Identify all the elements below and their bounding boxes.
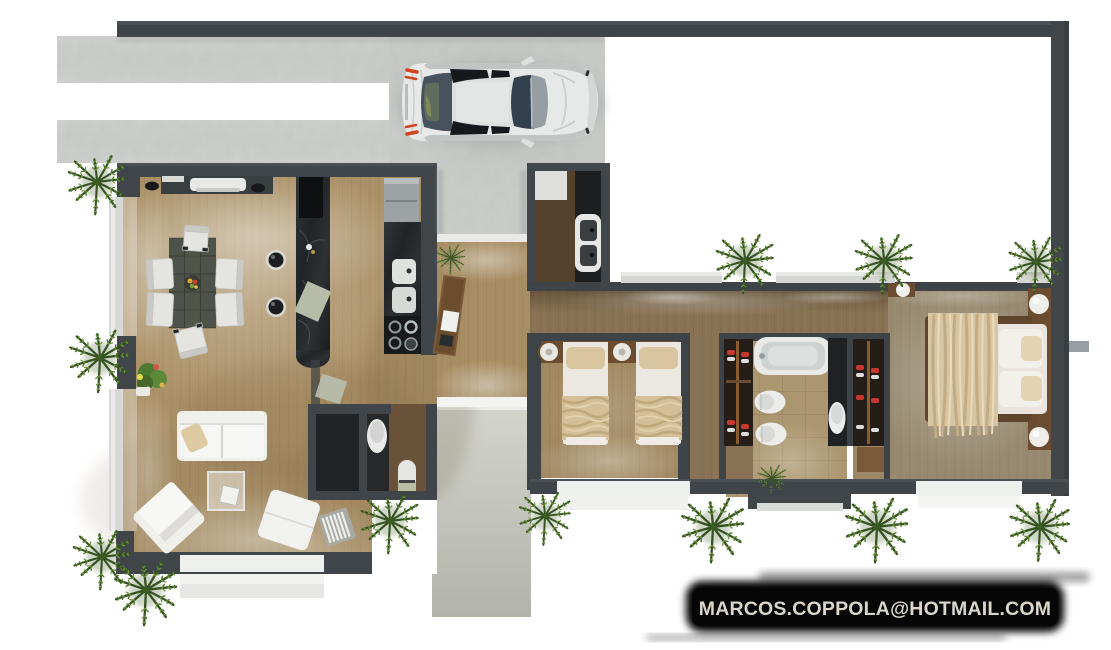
svg-text:MARCOS.COPPOLA@HOTMAIL.COM: MARCOS.COPPOLA@HOTMAIL.COM — [699, 598, 1051, 620]
